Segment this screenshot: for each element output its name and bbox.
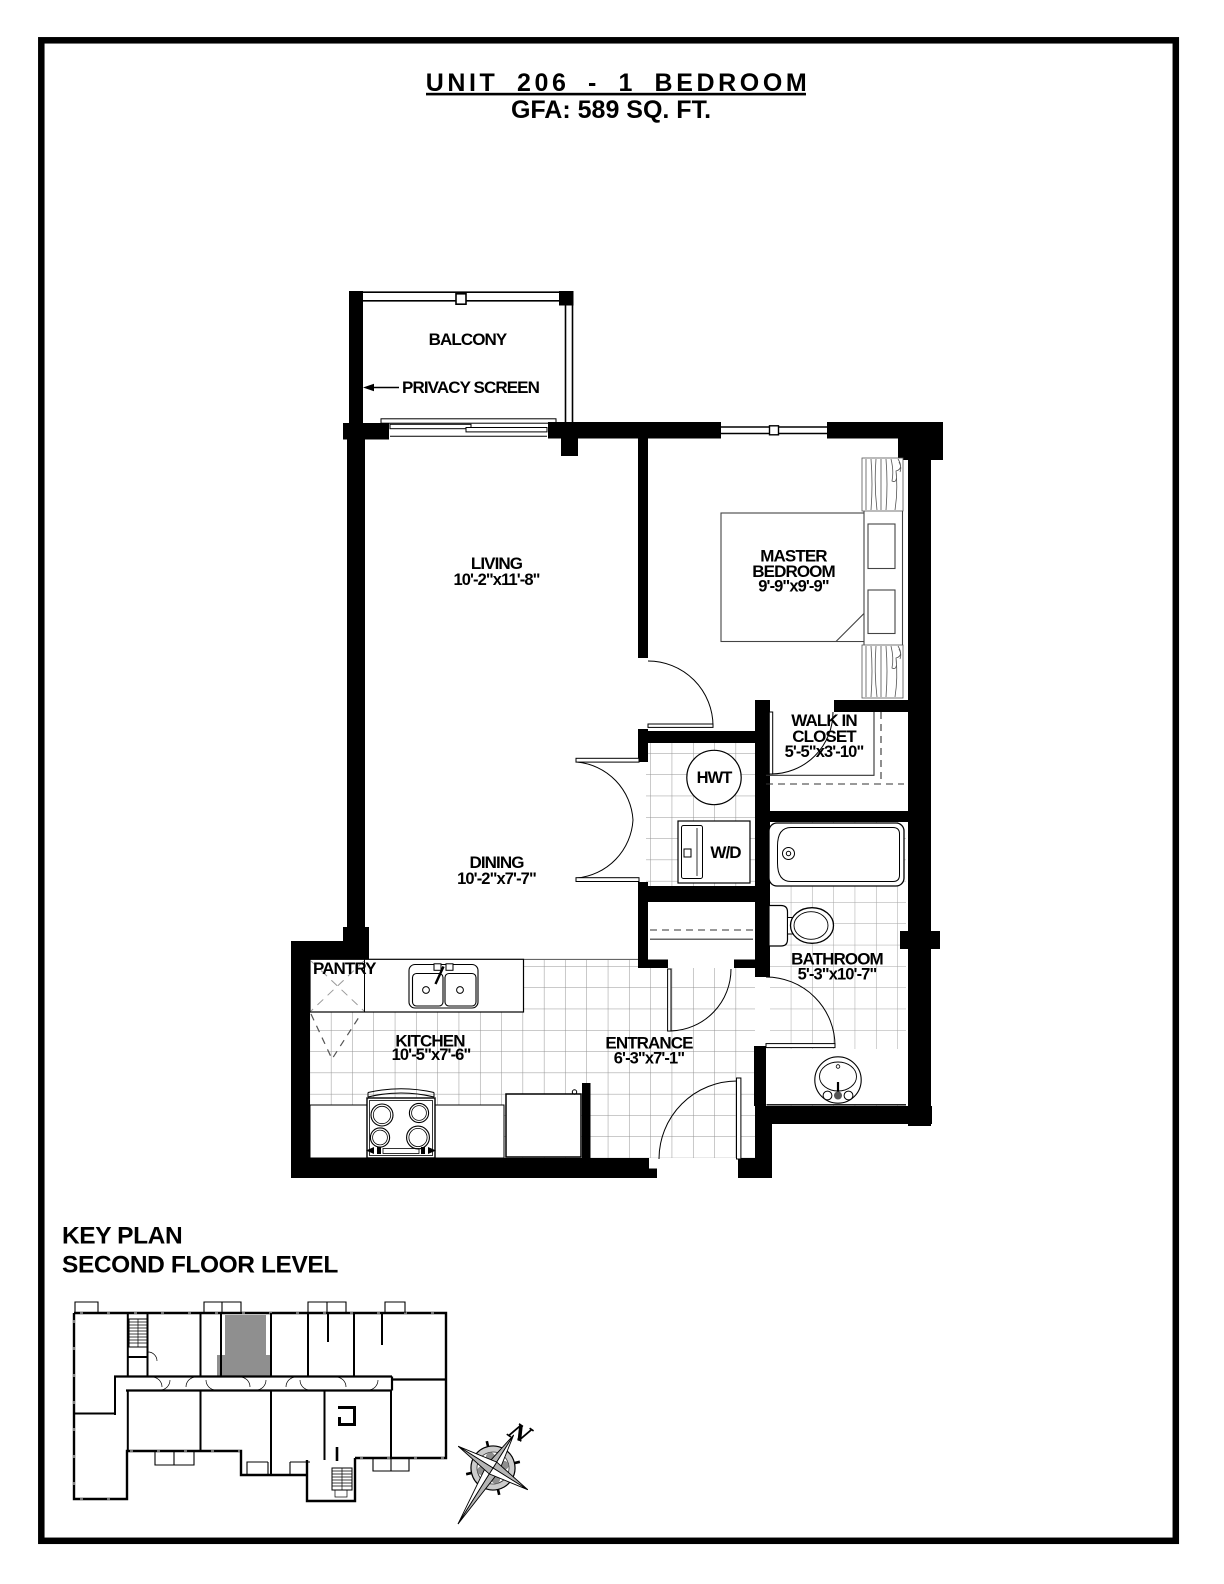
svg-text:5'-3"x10'-7": 5'-3"x10'-7" xyxy=(798,966,877,984)
svg-text:10'-5"x7'-6": 10'-5"x7'-6" xyxy=(392,1046,471,1064)
svg-text:PANTRY: PANTRY xyxy=(313,959,377,978)
svg-text:PRIVACY SCREEN: PRIVACY SCREEN xyxy=(402,378,540,397)
svg-text:HWT: HWT xyxy=(697,769,733,787)
svg-text:KEY PLAN: KEY PLAN xyxy=(62,1223,182,1250)
svg-text:9'-9"x9'-9": 9'-9"x9'-9" xyxy=(758,578,829,596)
svg-text:6'-3"x7'-1": 6'-3"x7'-1" xyxy=(614,1050,685,1068)
svg-text:10'-2"x7'-7": 10'-2"x7'-7" xyxy=(457,870,536,888)
svg-text:10'-2"x11'-8": 10'-2"x11'-8" xyxy=(453,571,539,589)
svg-text:BALCONY: BALCONY xyxy=(429,330,508,349)
svg-text:GFA: 589 SQ. FT.: GFA: 589 SQ. FT. xyxy=(511,96,711,124)
svg-text:5'-5"x3'-10": 5'-5"x3'-10" xyxy=(785,743,864,761)
svg-text:SECOND FLOOR LEVEL: SECOND FLOOR LEVEL xyxy=(62,1252,338,1279)
svg-text:W/D: W/D xyxy=(710,843,741,862)
